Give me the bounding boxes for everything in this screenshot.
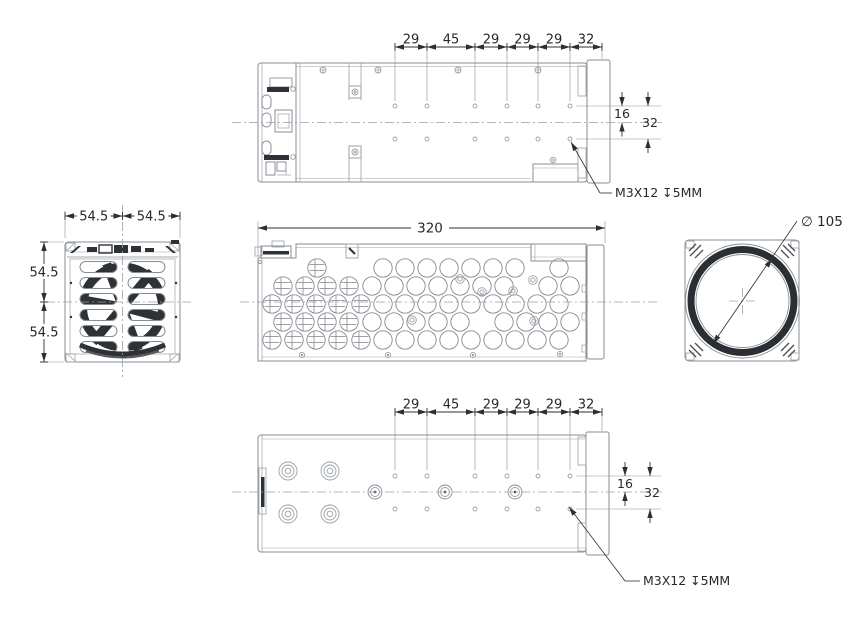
dim-320-label: 320 bbox=[417, 221, 443, 237]
dim-32-label: 32 bbox=[644, 485, 660, 500]
dim-chain-label: 45 bbox=[443, 33, 460, 48]
dim-chain-label: 54.5 bbox=[137, 210, 166, 225]
dim-545-label: 54.5 bbox=[30, 326, 59, 341]
dim-chain-label: 32 bbox=[578, 33, 595, 48]
dim-545-label: 54.5 bbox=[30, 266, 59, 281]
engineering-drawing-page: 2945292929321632M3X12 ↧5MM 54.554.554.55… bbox=[0, 0, 854, 636]
fan-blades bbox=[77, 264, 167, 350]
mount-note-label: M3X12 ↧5MM bbox=[615, 185, 702, 200]
engineering-drawing: 2945292929321632M3X12 ↧5MM 54.554.554.55… bbox=[0, 0, 854, 636]
dim-chain-label: 29 bbox=[514, 33, 531, 48]
rear-vent-view: 54.554.554.554.5 bbox=[26, 205, 192, 377]
dim-chain-label: 29 bbox=[546, 33, 563, 48]
bottom-side-view: 2945292929321632M3X12 ↧5MM bbox=[232, 398, 730, 589]
top-side-view: 2945292929321632M3X12 ↧5MM bbox=[232, 33, 702, 201]
dim-chain-label: 32 bbox=[578, 398, 595, 413]
mount-note-label: M3X12 ↧5MM bbox=[643, 573, 730, 588]
dim-32-label: 32 bbox=[642, 115, 658, 130]
dim-chain-label: 29 bbox=[403, 398, 420, 413]
top-dimension-chain: 2945292929321632M3X12 ↧5MM bbox=[395, 33, 702, 201]
dim-chain-label: 54.5 bbox=[79, 210, 108, 225]
vent-hole-grid bbox=[263, 259, 579, 349]
dim-chain-label: 45 bbox=[443, 398, 460, 413]
lens-front-view: ∅ 105 bbox=[685, 214, 843, 361]
main-side-view: 320 bbox=[240, 221, 657, 362]
dim-chain-label: 29 bbox=[546, 398, 563, 413]
dim-chain-label: 29 bbox=[483, 33, 500, 48]
length-dimension: 320 bbox=[258, 221, 605, 257]
dim-16-label: 16 bbox=[614, 106, 630, 121]
lens-diameter-dimension: ∅ 105 bbox=[711, 214, 843, 345]
dim-chain-label: 29 bbox=[403, 33, 420, 48]
dim-chain-label: 29 bbox=[483, 398, 500, 413]
dim-chain-label: 29 bbox=[514, 398, 531, 413]
dim-16-label: 16 bbox=[617, 476, 633, 491]
lens-diameter-label: ∅ 105 bbox=[801, 214, 843, 230]
